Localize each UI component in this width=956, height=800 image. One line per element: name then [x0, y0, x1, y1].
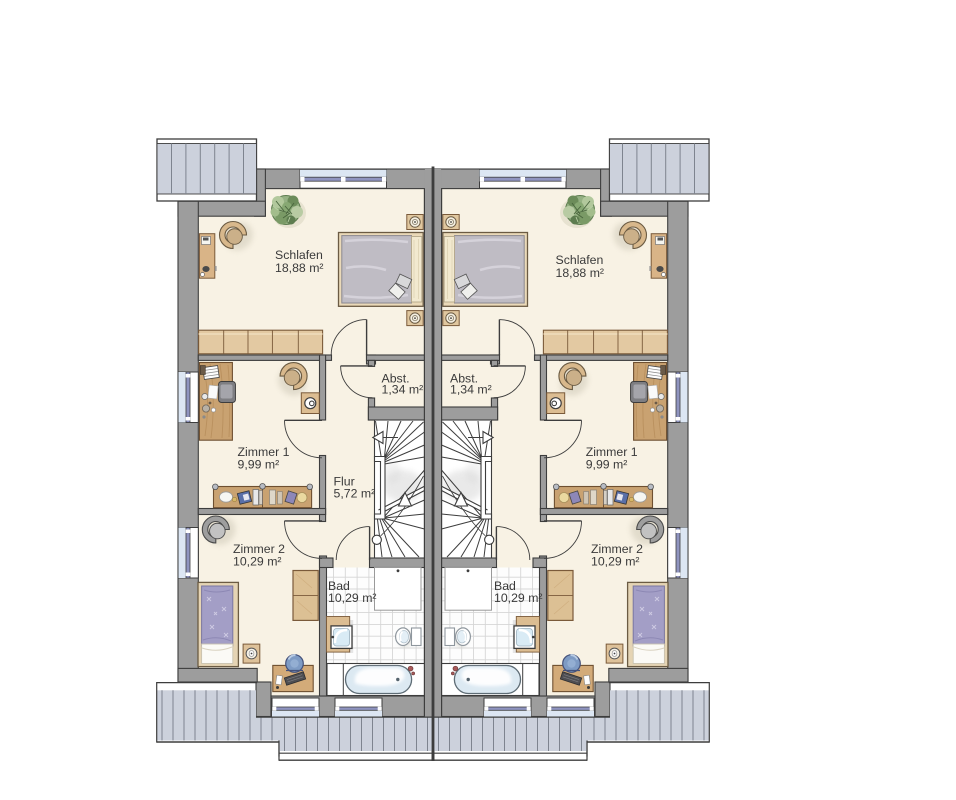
svg-text:Schlafen: Schlafen	[275, 248, 323, 262]
svg-text:1,34 m²: 1,34 m²	[382, 383, 424, 397]
svg-text:10,29 m²: 10,29 m²	[328, 591, 377, 605]
svg-text:5,72 m²: 5,72 m²	[334, 487, 376, 501]
svg-text:9,99 m²: 9,99 m²	[586, 458, 628, 472]
svg-text:9,99 m²: 9,99 m²	[238, 458, 280, 472]
svg-text:10,29 m²: 10,29 m²	[494, 591, 543, 605]
svg-text:10,29 m²: 10,29 m²	[591, 555, 640, 569]
svg-text:1,34 m²: 1,34 m²	[450, 383, 492, 397]
svg-text:Schlafen: Schlafen	[556, 253, 604, 267]
svg-text:10,29 m²: 10,29 m²	[233, 555, 282, 569]
svg-text:18,88 m²: 18,88 m²	[275, 261, 324, 275]
svg-text:18,88 m²: 18,88 m²	[556, 266, 605, 280]
